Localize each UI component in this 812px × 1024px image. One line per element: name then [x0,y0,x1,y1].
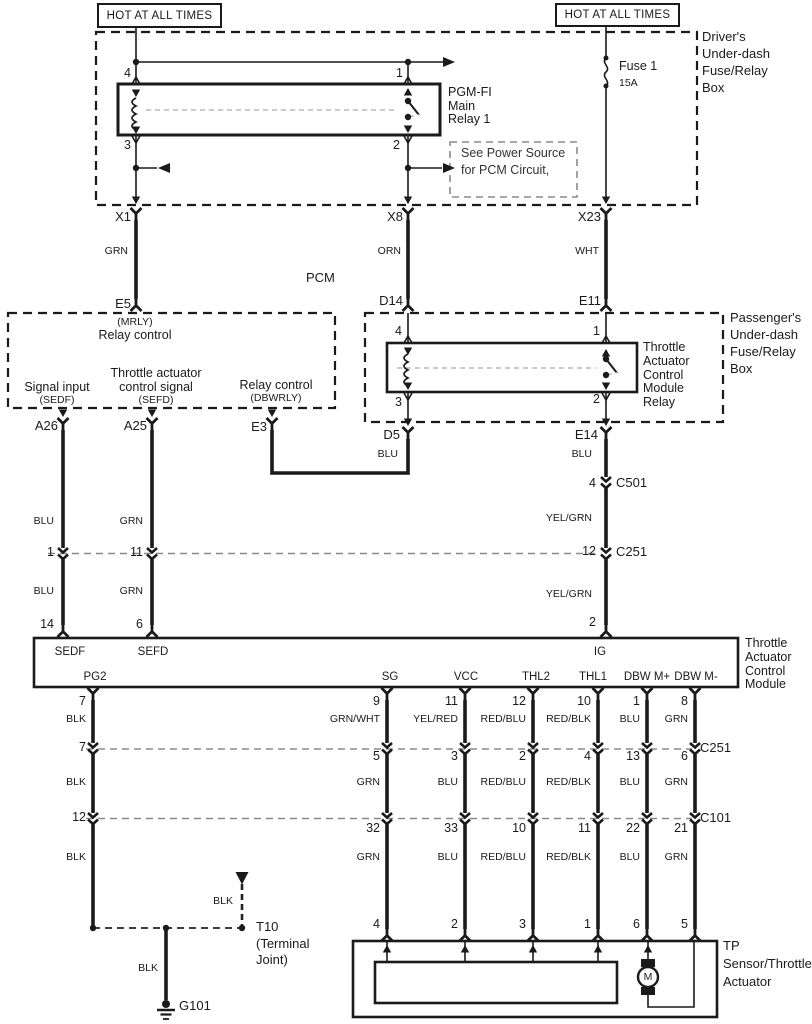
tac-relay-coil [404,354,408,386]
ground-wire-color: BLK [114,963,158,974]
tac-relay-pin-3: 3 [346,396,402,409]
passenger-box-label-1: Passenger's [730,311,801,325]
tp-pin-1: 1 [547,918,591,931]
pcm-dbwrly: (DBWRLY) [221,393,331,404]
tp-pin-3: 3 [482,918,526,931]
relay-pin-chevrons [132,77,610,400]
pcm-sedf: (SEDF) [7,395,107,406]
c251-upper-pin: 12 [540,545,596,558]
pgm-relay-coil [132,98,136,130]
col-vcc-color1: YEL/RED [388,714,458,725]
col-pg2-color1: BLK [16,714,86,725]
col-mminus-pin: 8 [644,695,688,708]
col-mplus-c251: 13 [596,750,640,763]
col-thl2-color3: RED/BLU [456,852,526,863]
tp-box-label-1: TP [723,939,740,953]
col-mminus-c101: 21 [644,822,688,835]
wire-color-wht: WHT [555,246,599,257]
col-sg-c251: 5 [336,750,380,763]
module-vcc: VCC [431,671,501,683]
connector-x1: X1 [75,210,131,224]
col-mminus-color2: GRN [618,777,688,788]
wire-color-orn: ORN [357,246,401,257]
driver-box-label-2: Under-dash [702,47,770,61]
tp-box-label-3: Actuator [723,975,771,989]
pcm-pin-a26: A26 [2,419,58,433]
driver-box-label-3: Fuse/Relay [702,64,768,78]
pgm-relay-pin-4: 4 [75,67,131,80]
driver-box-label-1: Driver's [702,30,746,44]
tac-relay-label-1: Throttle [643,341,685,354]
tp-sensor-inner-outline [375,962,617,1003]
a26-c251-pin: 1 [10,546,54,559]
pin-d5: D5 [344,428,400,442]
col-thl2-c251: 2 [482,750,526,763]
e14-wire-color: BLU [548,449,592,460]
tac-relay-label-2: Actuator [643,355,690,368]
driver-box-label-4: Box [702,81,724,95]
col-vcc-c251: 3 [414,750,458,763]
hot-right-label: HOT AT ALL TIMES [565,9,671,21]
col-vcc-color2: BLU [388,777,458,788]
col-thl2-c101: 10 [482,822,526,835]
hot-at-all-times-left: HOT AT ALL TIMES [97,3,222,28]
tac-relay-pin-1: 1 [544,325,600,338]
g101-label: G101 [179,999,211,1013]
a25-wire-color-2: GRN [99,586,143,597]
col-thl1-c101: 11 [547,822,591,835]
t10-label: T10 [256,920,278,934]
see-power-note-2: for PCM Circuit, [461,164,549,177]
col-pg2-color2: BLK [16,777,86,788]
tp-pin-6: 6 [596,918,640,931]
pgm-relay-pin-3: 3 [75,139,131,152]
c251-upper-label: C251 [616,545,647,559]
a26-wire-color-2: BLU [10,586,54,597]
tac-relay-label-4: Module [643,382,684,395]
module-pin-6: 6 [99,618,143,631]
t10-joint-label: Joint) [256,953,288,967]
col-mplus-pin: 1 [596,695,640,708]
motor-m-label: M [638,972,658,983]
c251-lower-label: C251 [700,741,731,755]
pin-e14: E14 [542,428,598,442]
module-ig-pin: 2 [540,616,596,629]
pgm-relay-pin-1: 1 [347,67,403,80]
fuse-1-rating: 15A [619,78,638,89]
tp-box-label-2: Sensor/Throttle [723,957,812,971]
pin-e11: E11 [545,294,601,308]
t10-stub-wire-color: BLK [189,896,233,907]
t10-terminal-label: (Terminal [256,937,309,951]
col-pg2-pin: 7 [42,695,86,708]
passenger-box-label-3: Fuse/Relay [730,345,796,359]
col-sg-pin: 9 [336,695,380,708]
c501-pin: 4 [540,477,596,490]
a25-c251-pin: 11 [99,546,143,559]
module-label-1: Throttle [745,637,787,650]
connector-x23: X23 [545,210,601,224]
connector-x8: X8 [347,210,403,224]
pgm-relay-pin-2: 2 [344,139,400,152]
col-vcc-pin: 11 [414,695,458,708]
module-pg2: PG2 [60,671,130,683]
ground-symbol-g101 [157,1000,175,1019]
col-vcc-c101: 33 [414,822,458,835]
pcm-throttle-actuator: Throttle actuator [96,367,216,380]
module-sg: SG [355,671,425,683]
pcm-relay-control: Relay control [80,329,190,342]
pcm-mrly: (MRLY) [85,317,185,328]
c101-label: C101 [700,811,731,825]
passenger-box-label-4: Box [730,362,752,376]
hot-left-label: HOT AT ALL TIMES [107,10,213,22]
module-dbw-m-minus: DBW M- [661,671,731,683]
col-thl1-pin: 10 [547,695,591,708]
pcm-signal-input: Signal input [7,381,107,394]
a25-wire-color-1: GRN [99,516,143,527]
hot-at-all-times-right: HOT AT ALL TIMES [555,3,680,27]
col-sg-color3: GRN [310,852,380,863]
yelgrn-wire-color-2: YEL/GRN [528,589,592,600]
module-sedf: SEDF [35,646,105,658]
pcm-pin-e5: E5 [75,297,131,311]
pcm-sefd: (SEFD) [96,395,216,406]
fuse-1-symbol [604,58,607,86]
yelgrn-wire-color-1: YEL/GRN [528,513,592,524]
pin-d14: D14 [347,294,403,308]
wiring-diagram-canvas [0,0,812,1024]
tac-relay-label-5: Relay [643,396,675,409]
col-sg-c101: 32 [336,822,380,835]
see-power-note-1: See Power Source [461,147,565,160]
col-thl2-pin: 12 [482,695,526,708]
pgm-relay-label-3: Relay 1 [448,113,490,126]
pcm-pin-a25: A25 [91,419,147,433]
col-mminus-color3: GRN [618,852,688,863]
col-sg-color2: GRN [310,777,380,788]
pcm-pin-e3: E3 [211,420,267,434]
module-pin-14: 14 [10,618,54,631]
tac-relay-pin-4: 4 [346,325,402,338]
col-sg-color1: GRN/WHT [310,714,380,725]
col-mplus-c101: 22 [596,822,640,835]
pcm-relay-control-2: Relay control [221,379,331,392]
col-pg2-color3: BLK [16,852,86,863]
wire-color-grn: GRN [84,246,128,257]
wiring-diagram-page: HOT AT ALL TIMES HOT AT ALL TIMES Driver… [0,0,812,1024]
pgm-relay-label-1: PGM-FI [448,86,492,99]
col-thl1-c251: 4 [547,750,591,763]
col-thl2-color2: RED/BLU [456,777,526,788]
tp-pin-5: 5 [644,918,688,931]
tac-relay-pin-2: 2 [544,393,600,406]
fuse-1-label: Fuse 1 [619,60,657,73]
pcm-title: PCM [306,271,335,285]
col-mminus-color1: GRN [618,714,688,725]
col-pg2-c251: 7 [42,741,86,754]
a26-wire-color-1: BLU [10,516,54,527]
pcm-control-signal: control signal [96,381,216,394]
col-mminus-c251: 6 [644,750,688,763]
tp-pin-2: 2 [414,918,458,931]
col-thl2-color1: RED/BLU [456,714,526,725]
c501-label: C501 [616,476,647,490]
module-label-4: Module [745,678,786,691]
tp-pin-4: 4 [336,918,380,931]
module-sefd: SEFD [118,646,188,658]
module-label-2: Actuator [745,651,792,664]
passenger-box-label-2: Under-dash [730,328,798,342]
module-ig: IG [565,646,635,658]
col-vcc-color3: BLU [388,852,458,863]
col-pg2-c101: 12 [42,811,86,824]
d5-wire-color: BLU [354,449,398,460]
